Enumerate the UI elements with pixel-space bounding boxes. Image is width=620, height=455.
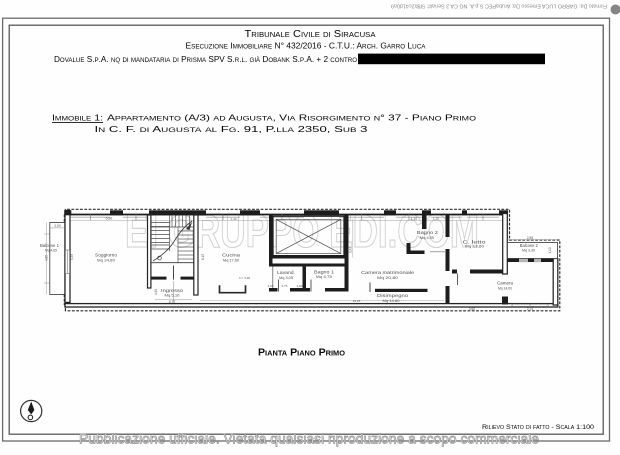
svg-text:2,80: 2,80 bbox=[297, 284, 303, 288]
svg-text:Appartamento (A/3) ad Augusta,: Appartamento (A/3) ad Augusta, Via Risor… bbox=[107, 114, 476, 123]
svg-text:Pianta Piano Primo: Pianta Piano Primo bbox=[258, 348, 346, 359]
svg-text:Camera matrimoniale: Camera matrimoniale bbox=[361, 270, 415, 275]
svg-text:Esecuzione Immobiliare N° 432/: Esecuzione Immobiliare N° 432/2016 - C.T… bbox=[186, 41, 426, 50]
svg-text:2,10: 2,10 bbox=[527, 307, 533, 311]
svg-text:Mq 5,10: Mq 5,10 bbox=[165, 294, 180, 298]
svg-text:C. letto: C. letto bbox=[463, 239, 487, 244]
svg-text:0,90: 0,90 bbox=[54, 224, 60, 228]
svg-text:Cucina: Cucina bbox=[222, 253, 241, 258]
svg-text:Mq 4,75: Mq 4,75 bbox=[316, 275, 332, 279]
svg-text:Pubblicazione ufficiale. Vieta: Pubblicazione ufficiale. Vietata qualsia… bbox=[79, 430, 539, 446]
svg-text:Balcone 1: Balcone 1 bbox=[40, 243, 60, 248]
svg-text:Balcone 2: Balcone 2 bbox=[520, 243, 539, 248]
svg-text:In C. F. di Augusta al Fg. 91,: In C. F. di Augusta al Fg. 91, P.lla 235… bbox=[95, 125, 369, 134]
svg-text:Mq 13,60: Mq 13,60 bbox=[465, 245, 484, 249]
svg-text:Mq 14,00: Mq 14,00 bbox=[498, 287, 512, 291]
svg-text:Bagno 1: Bagno 1 bbox=[314, 269, 335, 274]
svg-text:Mq 20,80: Mq 20,80 bbox=[377, 276, 398, 280]
svg-text:4,40: 4,40 bbox=[154, 289, 158, 295]
svg-text:4,65: 4,65 bbox=[44, 255, 48, 261]
svg-text:Mq 24,80: Mq 24,80 bbox=[97, 258, 115, 262]
svg-text:5,35: 5,35 bbox=[70, 254, 74, 260]
svg-text:Disimpegno: Disimpegno bbox=[377, 293, 409, 298]
svg-text:21,25: 21,25 bbox=[353, 299, 361, 303]
svg-text:Mq 17,60: Mq 17,60 bbox=[223, 259, 239, 263]
svg-text:6,72: 6,72 bbox=[169, 300, 176, 304]
svg-text:Mq 3,30: Mq 3,30 bbox=[522, 249, 535, 253]
svg-text:1,10: 1,10 bbox=[411, 217, 417, 221]
svg-text:Ingresso: Ingresso bbox=[161, 288, 184, 293]
svg-text:Camera: Camera bbox=[497, 281, 514, 286]
svg-text:1,70: 1,70 bbox=[433, 216, 439, 220]
svg-text:Firmato Da: GARRO LUCA Emesso: Firmato Da: GARRO LUCA Emesso Da: ArubaP… bbox=[391, 3, 607, 9]
svg-text:0,75: 0,75 bbox=[282, 284, 288, 288]
svg-text:Immobile 1:: Immobile 1: bbox=[52, 114, 103, 123]
svg-text:Soggiorno: Soggiorno bbox=[95, 252, 118, 257]
svg-text:3,42: 3,42 bbox=[349, 247, 353, 253]
svg-text:6,15: 6,15 bbox=[201, 254, 205, 260]
svg-text:5,90: 5,90 bbox=[106, 217, 113, 221]
svg-text:Mq 4,50: Mq 4,50 bbox=[420, 236, 434, 240]
svg-text:h = 3,28: h = 3,28 bbox=[239, 276, 250, 280]
svg-text:3,60: 3,60 bbox=[469, 307, 475, 311]
svg-text:Mq 3,05: Mq 3,05 bbox=[279, 276, 293, 280]
svg-text:2,05: 2,05 bbox=[268, 284, 274, 288]
svg-text:1,40: 1,40 bbox=[231, 217, 237, 221]
svg-text:Lavand.: Lavand. bbox=[277, 270, 295, 275]
svg-text:1,10: 1,10 bbox=[548, 247, 552, 253]
svg-text:Mq 4,65: Mq 4,65 bbox=[45, 248, 57, 252]
svg-text:Mq 14,60: Mq 14,60 bbox=[383, 299, 400, 303]
svg-text:Dovalue S.p.A. nq di mandatari: Dovalue S.p.A. nq di mandataria di Prism… bbox=[54, 55, 357, 64]
svg-text:Tribunale Civile di Siracusa: Tribunale Civile di Siracusa bbox=[245, 29, 376, 40]
svg-text:Bagno 2: Bagno 2 bbox=[417, 230, 439, 235]
svg-text:2,85: 2,85 bbox=[527, 236, 533, 240]
